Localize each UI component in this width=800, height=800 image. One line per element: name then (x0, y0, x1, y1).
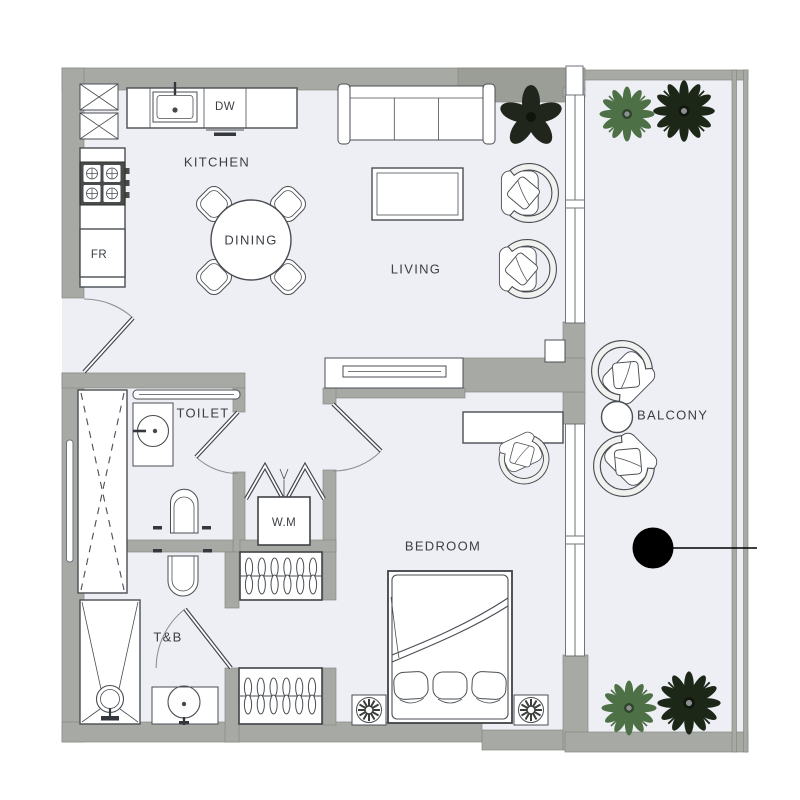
fridge: FR (80, 229, 125, 277)
window-living (566, 66, 585, 323)
tv-console (325, 358, 463, 388)
shaft (78, 390, 127, 593)
stove (80, 162, 130, 205)
tb-sink (152, 686, 218, 725)
toilet-sink (133, 403, 173, 466)
floorplan-page: FR DW KITCHEN DINING (0, 0, 800, 800)
toilet-label: TOILET (176, 405, 229, 420)
bedroom-label: BEDROOM (405, 538, 481, 553)
lamp (519, 698, 544, 723)
living-label: LIVING (391, 261, 441, 276)
tb-label: T&B (153, 629, 182, 644)
floorplan-drawing: FR DW KITCHEN DINING (0, 0, 800, 800)
side-table (545, 340, 565, 362)
window-left-wall (67, 440, 74, 562)
washing-machine: W.M (258, 497, 310, 545)
sofa (338, 84, 495, 144)
lamp (357, 698, 382, 723)
bed (388, 571, 512, 723)
washing-machine-label: W.M (272, 517, 296, 529)
nightstand (514, 695, 548, 725)
window-bedroom (566, 424, 585, 656)
closet-top (240, 552, 322, 600)
kitchen-label: KITCHEN (184, 154, 250, 169)
dining-label: DINING (224, 232, 277, 247)
nightstand (352, 695, 386, 725)
dishwasher-label: DW (215, 101, 235, 113)
balcony-label: BALCONY (637, 407, 708, 422)
balcony-rail-outer (732, 70, 737, 752)
kitchen-counter: DW (127, 82, 297, 136)
fridge-label: FR (91, 249, 107, 261)
closet-bottom (239, 668, 322, 724)
balcony-rail-inner (744, 70, 749, 752)
coffee-table (372, 168, 463, 220)
shower (80, 600, 140, 724)
balcony-table (602, 402, 633, 433)
